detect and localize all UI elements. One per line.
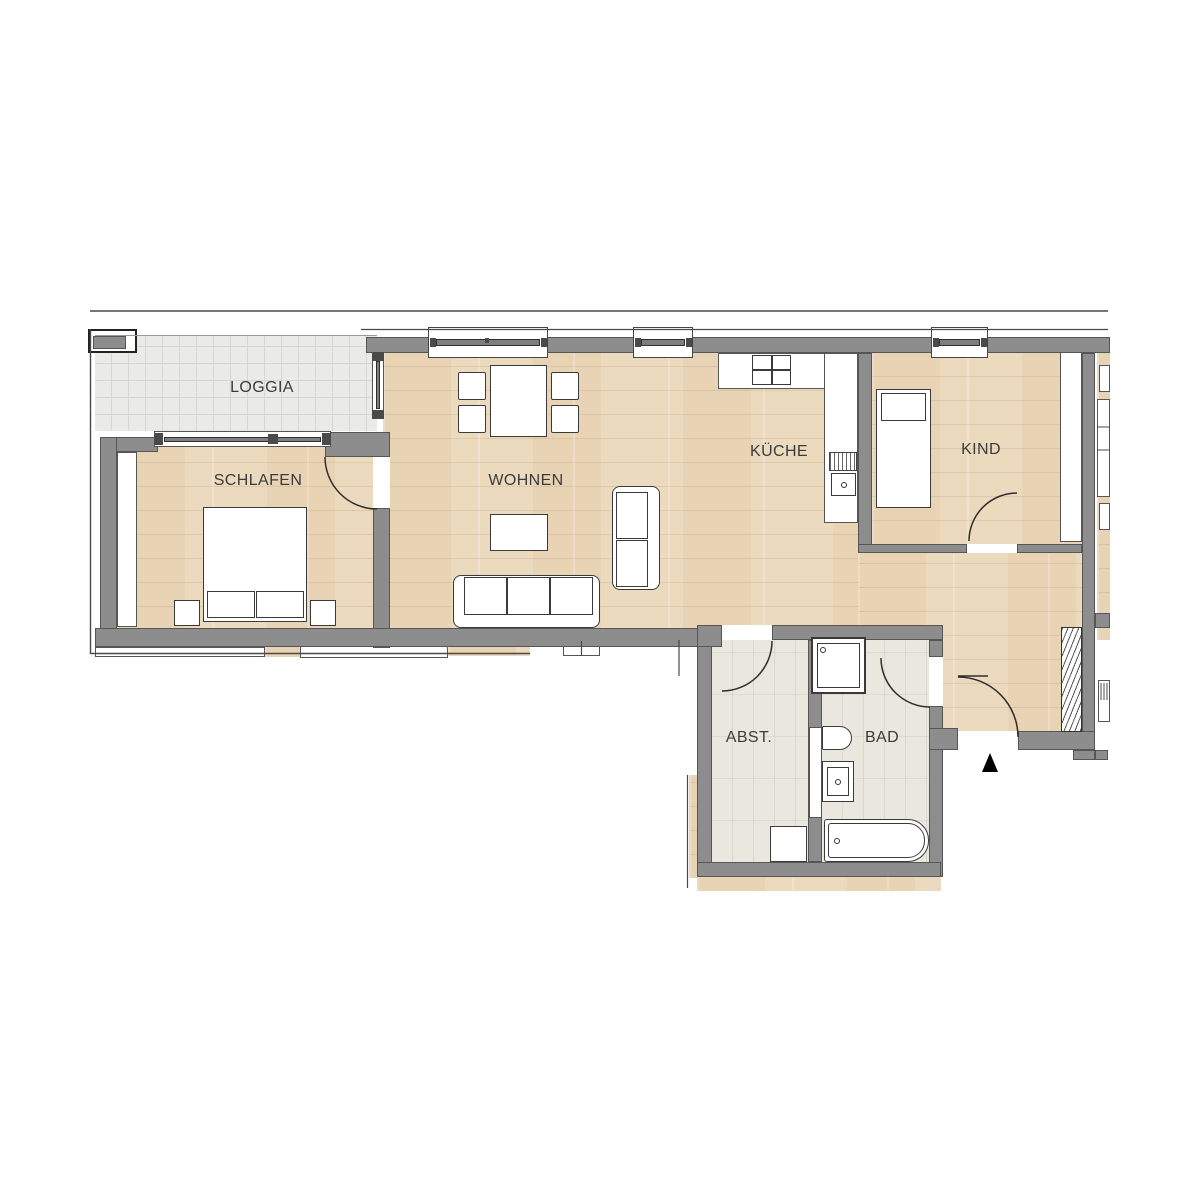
shower-faucet-dot	[820, 647, 826, 653]
loggia-window-east-mullion-b	[372, 410, 384, 419]
wall-abst-west	[697, 625, 712, 877]
loggia-window-east-glazing	[376, 361, 380, 409]
door-opening-entry	[958, 731, 1018, 750]
loggia-window-south-mullion-c	[268, 434, 278, 444]
room-label-abst: ABST.	[726, 729, 772, 747]
wall-kind-south-right	[1017, 544, 1082, 553]
dining-table	[490, 365, 547, 437]
nightstand-right	[310, 600, 336, 626]
sofa-two-seat-cushion-1	[616, 492, 648, 539]
chair-top-left	[458, 372, 486, 400]
neighbor-fragment-r2	[1097, 399, 1110, 497]
neighbor-floor-fragment-a	[265, 646, 305, 657]
stove	[752, 355, 791, 385]
kitchen-counter-side	[824, 353, 858, 523]
window-north-2-glazing	[641, 339, 685, 346]
kitchen-sink-drainer	[829, 452, 857, 471]
room-label-wohnen: WOHNEN	[488, 472, 563, 490]
room-label-loggia: LOGGIA	[230, 379, 294, 397]
chair-top-right	[551, 372, 579, 400]
sofa-two-seat-cushion-2	[616, 540, 648, 587]
wall-stub-neighbor	[1095, 750, 1108, 760]
schlafen-wardrobe	[117, 452, 137, 627]
window-north-2-mullion-l	[635, 338, 641, 347]
toilet	[822, 726, 852, 750]
wall-schlafen-wohnen	[373, 508, 390, 648]
sofa-three-seat-cushion-1	[464, 577, 507, 615]
floor-plan: LOGGIA SCHLAFEN WOHNEN KÜCHE KIND ABST. …	[0, 0, 1200, 1200]
radiator	[1061, 627, 1082, 732]
window-north-1-mullion-r	[541, 338, 547, 347]
window-north-3-mullion-l	[933, 338, 939, 347]
neighbor-floor-fragment-d	[697, 877, 941, 891]
door-opening-bad	[929, 657, 943, 706]
wall-schlafen-west	[100, 437, 117, 648]
room-label-kind: KIND	[961, 441, 1001, 459]
kind-wardrobe	[1060, 352, 1082, 542]
sofa-three-seat-cushion-2	[507, 577, 550, 615]
wall-abstbad-south	[697, 862, 941, 877]
neighbor-fragment-r3	[1099, 503, 1110, 530]
wall-entry-south	[1018, 731, 1095, 750]
coffee-table	[490, 514, 548, 551]
loggia-window-east-mullion-t	[372, 352, 384, 361]
nightstand-left	[174, 600, 200, 626]
wall-east	[1082, 353, 1095, 760]
neighbor-doorframe-fragment	[1098, 680, 1110, 722]
window-north-3-mullion-r	[981, 338, 987, 347]
entrance-marker-icon	[982, 753, 998, 772]
room-label-kueche: KÜCHE	[750, 443, 808, 461]
wall-schlafen-northright	[325, 432, 390, 457]
window-north-1-mullion-c	[485, 338, 489, 343]
loggia-window-south-mullion-l	[154, 433, 163, 445]
chair-bottom-left	[458, 405, 486, 433]
neighbor-fragment-r1	[1099, 365, 1110, 392]
loggia-window-south-mullion-r	[322, 433, 331, 445]
chair-bottom-right	[551, 405, 579, 433]
window-north-1-mullion-l	[430, 338, 436, 347]
room-label-schlafen: SCHLAFEN	[214, 472, 303, 490]
door-opening-schlafen	[373, 457, 390, 508]
wall-entry-corner	[1073, 750, 1095, 760]
shaft	[809, 727, 822, 818]
window-north-3-glazing	[939, 339, 980, 346]
kitchen-sink-faucet-dot	[841, 482, 847, 488]
single-bed-pillow	[881, 393, 926, 421]
neighbor-loggia-fragment	[95, 647, 265, 657]
sofa-three-seat-cushion-3	[550, 577, 593, 615]
wall-stub-neighbor-mid	[1095, 613, 1110, 628]
loggia-window-south-glazing	[164, 437, 321, 442]
room-label-bad: BAD	[865, 729, 899, 747]
wall-bad-east-jamb	[929, 640, 943, 657]
door-opening-kind	[967, 544, 1017, 553]
loggia-pier-core	[93, 336, 126, 349]
double-bed-mattress-left	[207, 591, 255, 618]
wall-south	[95, 628, 720, 647]
wall-abst-north-corner	[697, 625, 722, 647]
washbasin-faucet-dot	[835, 779, 841, 785]
wall-entry-west-stub	[929, 728, 958, 750]
door-opening-abst	[722, 625, 772, 640]
window-north-2-mullion-r	[686, 338, 692, 347]
bathtub-inner	[828, 823, 925, 858]
bathtub-faucet-dot	[834, 838, 840, 844]
double-bed-mattress-right	[256, 591, 304, 618]
wall-kitchen-kind	[858, 353, 872, 553]
washing-machine	[770, 826, 807, 862]
wall-kind-south-left	[858, 544, 967, 553]
